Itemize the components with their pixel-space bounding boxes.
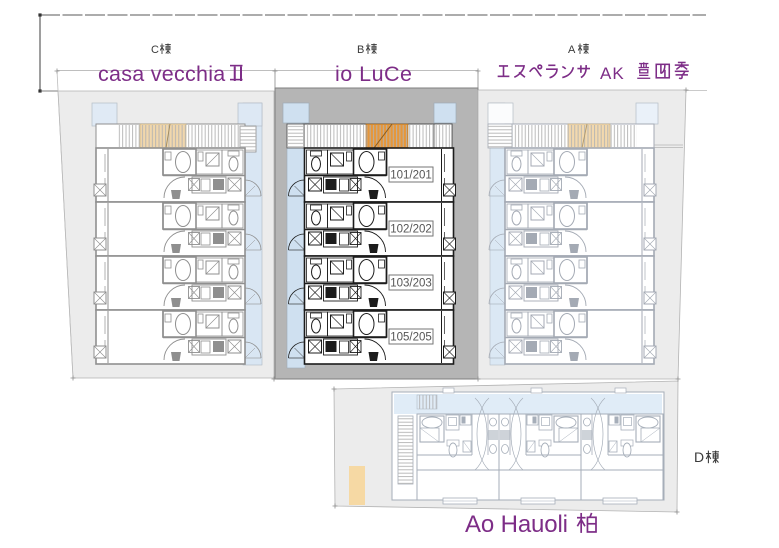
svg-text:A: A (568, 44, 576, 56)
svg-text:102/202: 102/202 (390, 224, 432, 236)
svg-text:103/203: 103/203 (390, 278, 432, 290)
svg-text:Ao Hauoli: Ao Hauoli (465, 511, 568, 538)
svg-text:B: B (357, 44, 364, 56)
svg-text:AK: AK (600, 64, 625, 83)
svg-text:101/201: 101/201 (390, 170, 432, 182)
svg-text:io LuCe: io LuCe (335, 62, 412, 86)
svg-text:C: C (151, 44, 159, 56)
svg-text:casa vecchia II: casa vecchia II (98, 62, 244, 86)
svg-text:105/205: 105/205 (390, 332, 432, 344)
svg-text:D: D (694, 449, 704, 465)
